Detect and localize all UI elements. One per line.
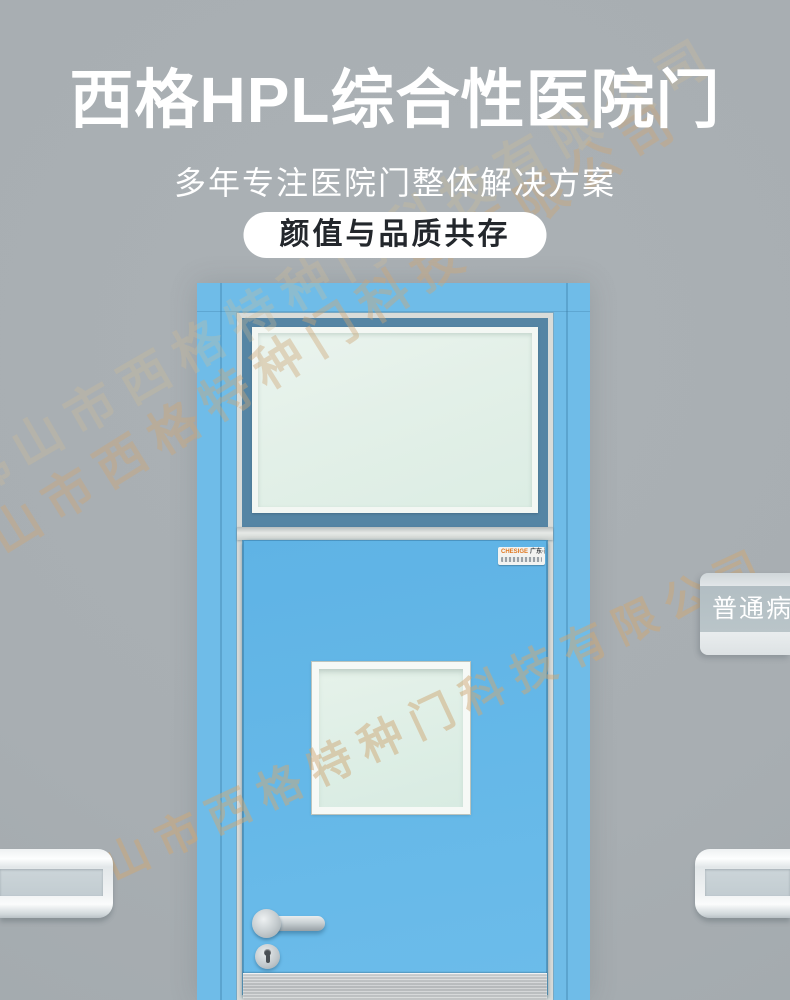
door-window-frame bbox=[312, 662, 470, 814]
transom-window-glass bbox=[258, 333, 532, 507]
poster-title: 西格HPL综合性医院门 bbox=[0, 64, 790, 138]
brand-label-row: CHESIGE 广东·西格 bbox=[498, 547, 545, 555]
door-brand-label: CHESIGE 广东·西格 bbox=[498, 547, 545, 565]
lock-escutcheon bbox=[255, 944, 280, 969]
door-leaf: CHESIGE 广东·西格 bbox=[243, 540, 547, 1000]
room-sign: 普通病房 bbox=[700, 573, 790, 655]
rail-band bbox=[705, 869, 790, 896]
rail-band bbox=[0, 869, 103, 896]
door-handle-rose bbox=[252, 909, 281, 938]
frame-seam-left bbox=[220, 283, 222, 1000]
frame-seam-top bbox=[197, 311, 590, 312]
transom-window-frame bbox=[252, 327, 538, 513]
brand-name-text: 广东·西格 bbox=[530, 549, 545, 555]
poster: 佛山市西格特种门科技有限公司 佛山市西格特种门科技有限公司 佛山市西格特种门科技… bbox=[0, 0, 790, 1000]
room-sign-text: 普通病房 bbox=[712, 595, 790, 623]
room-sign-band: 普通病房 bbox=[700, 586, 790, 632]
door-window-glass bbox=[319, 669, 463, 807]
wall-guard-rail-left bbox=[0, 849, 113, 918]
keyhole-stem bbox=[266, 954, 270, 963]
frame-seam-right bbox=[566, 283, 568, 1000]
transom-panel bbox=[242, 318, 548, 527]
wall-guard-rail-right bbox=[695, 849, 790, 918]
quality-badge: 颜值与品质共存 bbox=[244, 212, 547, 258]
brand-logo-text: CHESIGE bbox=[501, 549, 528, 555]
brand-label-subtext-strip bbox=[501, 557, 542, 562]
transom-divider bbox=[237, 527, 553, 540]
poster-subtitle: 多年专注医院门整体解决方案 bbox=[0, 158, 790, 204]
hospital-door: CHESIGE 广东·西格 bbox=[197, 283, 590, 1000]
kick-plate bbox=[243, 973, 547, 1000]
